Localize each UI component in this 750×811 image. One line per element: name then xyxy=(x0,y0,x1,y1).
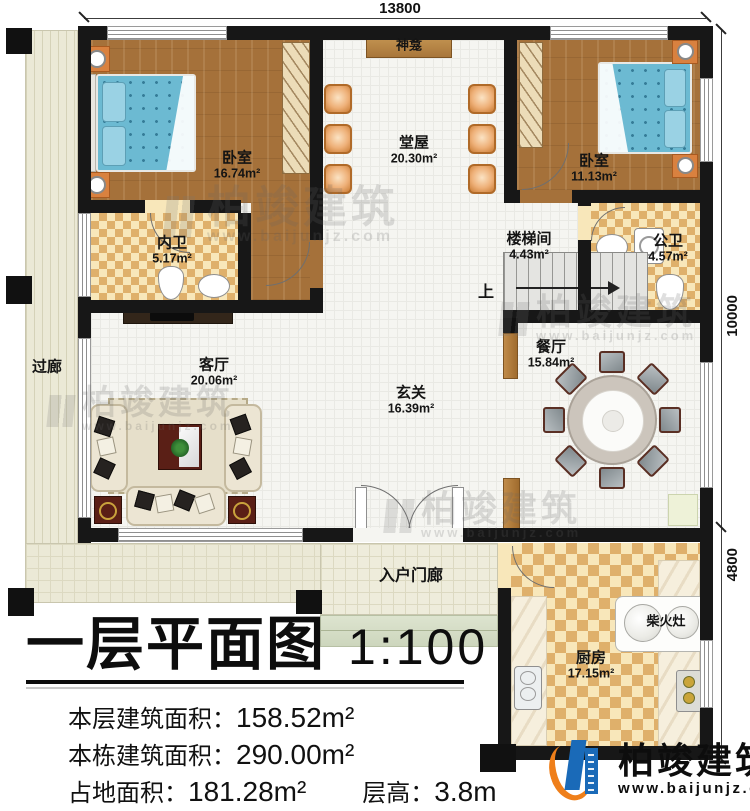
window-seat-plant-box xyxy=(668,494,698,526)
sink-bowl-icon xyxy=(520,687,536,701)
bed-bedroom-right xyxy=(598,62,692,154)
wall-bedroom-right-west xyxy=(504,26,517,190)
room-label-bedroom-right: 卧室 11.13m² xyxy=(571,153,617,184)
nightstand xyxy=(672,154,698,178)
dining-chair xyxy=(659,407,681,433)
dining-chair xyxy=(543,407,565,433)
brand-logo-text: 柏竣建筑 www.baijunjz.com xyxy=(618,742,750,797)
window-right-dining xyxy=(700,362,713,488)
pillow xyxy=(102,126,126,166)
room-label-living: 客厅 20.06m² xyxy=(191,357,238,388)
lamp-icon xyxy=(677,43,694,60)
hall-chair xyxy=(324,84,352,114)
window-top-bedroom-right xyxy=(550,26,668,40)
tv-icon xyxy=(150,312,194,321)
room-label-public-bath: 公卫 4.57m² xyxy=(648,233,688,264)
brand-name: 柏竣建筑 xyxy=(618,742,750,780)
pier-marker xyxy=(6,28,32,54)
wall-stair-dining-divider xyxy=(503,310,712,323)
decor-icon xyxy=(99,502,117,520)
dimension-line-right-lower xyxy=(721,528,722,760)
burner-icon xyxy=(683,692,695,704)
area-statistics: 本层建筑面积： 158.52m² 本栋建筑面积： 290.00m² 占地面积： … xyxy=(68,699,497,810)
coffee-table xyxy=(158,424,202,470)
terrace-bottom xyxy=(25,543,322,603)
sofa-pillow xyxy=(233,437,253,457)
page-title: 一层平面图 xyxy=(26,612,326,678)
brand-logo: 柏竣建筑 www.baijunjz.com xyxy=(548,736,750,802)
room-label-wood-stove: 柴火灶 xyxy=(646,613,685,630)
scale-label: 1:100 xyxy=(348,618,488,676)
window-right-kitchen xyxy=(700,640,713,708)
door-opening-bedroom-left xyxy=(310,240,323,288)
dining-chair xyxy=(599,467,625,489)
burner-icon xyxy=(683,676,695,688)
window-left-living xyxy=(78,338,91,518)
window-left-ensuite xyxy=(78,213,91,297)
blanket-fold xyxy=(600,64,636,152)
door-opening-bedroom-right xyxy=(520,190,572,203)
room-label-entry-porch: 入户门廊 xyxy=(379,568,443,585)
dimension-right-lower-label: 4800 xyxy=(724,548,741,581)
room-label-stair-room: 楼梯间 4.43m² xyxy=(506,231,551,262)
terrace-corridor xyxy=(25,30,78,603)
door-opening-entry xyxy=(353,528,463,542)
hall-side-table xyxy=(324,124,352,154)
pier-marker xyxy=(503,318,518,333)
brand-logo-icon xyxy=(548,736,610,802)
dimension-line-top xyxy=(84,18,706,19)
hall-side-table xyxy=(468,124,496,154)
cabinet xyxy=(503,333,518,379)
window-right-bedroom xyxy=(700,78,713,162)
door-opening-public-bath xyxy=(578,206,591,240)
floor-plan-canvas: 13800 10000 4800 xyxy=(0,0,750,811)
wall-ensuite-bottom xyxy=(78,300,323,313)
dimension-line-right-upper xyxy=(721,30,722,528)
pillow xyxy=(664,110,686,148)
door-opening-kitchen xyxy=(498,543,511,588)
stat-row: 本层建筑面积： 158.52m² xyxy=(68,699,497,736)
room-label-corridor: 过廊 xyxy=(32,359,62,376)
hall-chair xyxy=(324,164,352,194)
nightstand xyxy=(672,40,698,64)
room-label-ensuite: 内卫 5.17m² xyxy=(152,235,192,266)
room-label-bedroom-left: 卧室 16.74m² xyxy=(214,150,261,181)
door-opening-ensuite xyxy=(145,200,190,213)
wall-kitchen-left xyxy=(498,588,511,760)
kitchen-sink xyxy=(514,666,542,710)
staircase xyxy=(503,252,648,318)
hall-chair xyxy=(468,84,496,114)
stair-direction-line xyxy=(516,287,612,289)
room-label-kitchen: 厨房 17.15m² xyxy=(568,650,615,681)
room-label-hall: 堂屋 20.30m² xyxy=(391,135,438,166)
bed-bedroom-left xyxy=(96,74,196,172)
wardrobe-bedroom-left xyxy=(282,42,310,174)
room-label-foyer: 玄关 16.39m² xyxy=(388,385,435,416)
pier-marker xyxy=(296,590,322,614)
gas-stove xyxy=(676,670,702,712)
dimension-tick xyxy=(700,11,711,22)
wardrobe-bedroom-right xyxy=(519,42,543,148)
corner-table xyxy=(228,496,256,524)
wall-ensuite-east xyxy=(238,213,251,300)
dining-table xyxy=(567,375,657,465)
kitchen-counter-right xyxy=(658,560,700,746)
sink xyxy=(198,274,230,298)
sofa-pillow xyxy=(96,436,116,456)
room-label-shrine: 神龛 xyxy=(396,37,422,54)
blanket-fold xyxy=(160,76,194,170)
stat-row: 占地面积： 181.28m² 层高： 3.8m xyxy=(68,773,497,810)
dimension-right-upper-label: 10000 xyxy=(724,295,741,337)
stair-direction-arrowhead xyxy=(608,281,620,295)
logo-building-bar-icon xyxy=(585,748,598,794)
pillow xyxy=(102,82,126,122)
sink-bowl-icon xyxy=(520,671,536,685)
stair-up-label: 上 xyxy=(478,278,494,302)
hall-chair xyxy=(468,164,496,194)
lamp-icon xyxy=(677,157,694,174)
decor-icon xyxy=(233,502,251,520)
dining-chair xyxy=(599,351,625,373)
lazy-susan-icon xyxy=(602,410,624,432)
pier-marker xyxy=(6,276,32,304)
stat-row: 本栋建筑面积： 290.00m² xyxy=(68,736,497,773)
plant-icon xyxy=(171,439,189,457)
pillow xyxy=(664,69,686,107)
title-underline xyxy=(26,680,464,684)
brand-website: www.baijunjz.com xyxy=(618,780,750,797)
corner-table xyxy=(94,496,122,524)
title-underline-shadow xyxy=(26,687,464,689)
wall-bedroom-left-east xyxy=(310,26,323,240)
title-block: 一层平面图 1:100 本层建筑面积： 158.52m² 本栋建筑面积： 290… xyxy=(26,612,497,810)
dimension-tick xyxy=(78,11,89,22)
dimension-top-label: 13800 xyxy=(350,0,450,17)
room-label-dining: 餐厅 15.84m² xyxy=(528,339,575,370)
wall-foyer-dining-bottom xyxy=(463,528,712,542)
sofa-pillow xyxy=(155,494,175,514)
window-top-bedroom-left xyxy=(107,26,227,40)
window-bottom-living xyxy=(118,528,303,542)
